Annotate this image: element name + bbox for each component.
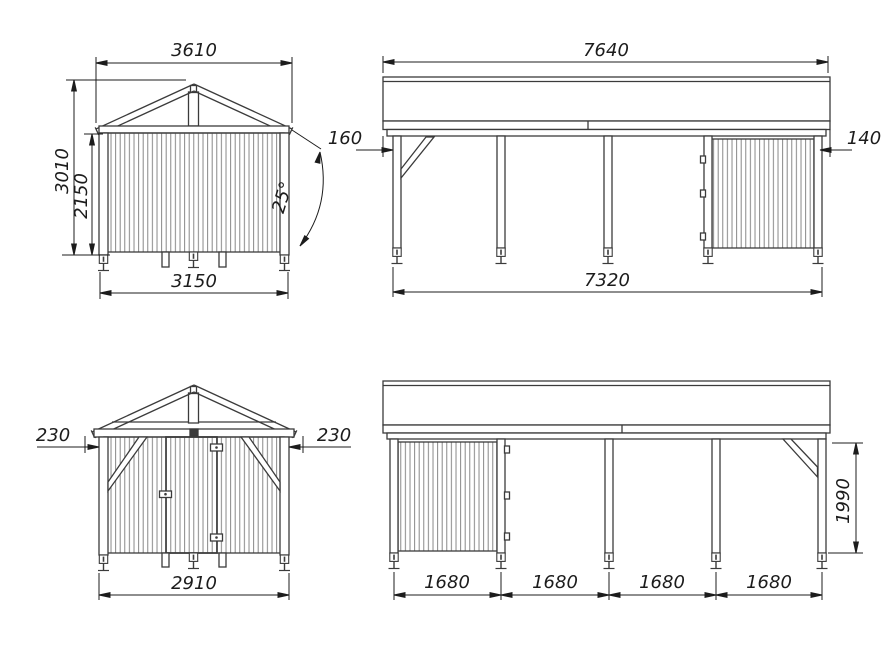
dim-right-overhang: 230 — [317, 425, 351, 446]
dim-roof-length: 7640 — [583, 40, 629, 61]
king-post — [189, 92, 199, 126]
dim-total-height: 3010 — [52, 148, 73, 194]
dim-bay-1: 1680 — [424, 572, 470, 593]
dim-left-overhang: 230 — [36, 425, 70, 446]
corner-post-left — [99, 437, 108, 555]
corner-post-right — [280, 437, 289, 555]
side-a-wall-section — [701, 136, 823, 248]
side-view-a: 7640 160 140 7320 — [328, 40, 881, 297]
dim-post-height: 1990 — [833, 478, 854, 524]
hinge-mark — [701, 233, 706, 240]
hinge-mark — [505, 446, 510, 453]
side-view-b: 1990 1680 1680 1680 1680 — [383, 381, 863, 600]
dim-roof-width-a: 3610 — [171, 40, 217, 61]
dim-left-offset: 160 — [328, 128, 362, 149]
front-b-foundation — [98, 553, 290, 571]
dim-bay-4: 1680 — [746, 572, 792, 593]
front-a-roof — [95, 84, 293, 135]
dim-right-offset: 140 — [847, 128, 881, 149]
hinge-mark — [701, 190, 706, 197]
dim-base-width-a: 3150 — [171, 271, 217, 292]
post-anchor — [188, 252, 199, 268]
dim-base-width-b: 2910 — [171, 573, 217, 594]
front-view-a: 3610 3010 2150 3150 25° — [52, 40, 323, 299]
hinge-mark — [505, 533, 510, 540]
post-anchor — [279, 555, 290, 571]
roof-beam — [383, 121, 830, 130]
post-anchor — [98, 555, 109, 571]
side-b-posts — [605, 439, 826, 553]
hinge-mark — [701, 156, 706, 163]
carport-technical-drawing: 3610 3010 2150 3150 25° — [0, 0, 894, 658]
post-anchor — [279, 255, 290, 271]
front-view-b: 230 230 2910 — [36, 385, 351, 600]
corner-post-left — [99, 133, 108, 255]
diagonal-brace — [401, 137, 434, 178]
ridge-bolt — [190, 429, 198, 436]
front-a-foundation — [98, 252, 290, 271]
front-a-siding — [104, 133, 284, 252]
dim-bay-3: 1680 — [639, 572, 685, 593]
hinge-mark — [505, 492, 510, 499]
roof-beam — [383, 425, 830, 433]
side-b-wall-section — [390, 439, 510, 553]
side-b-roof — [383, 381, 830, 439]
front-b-roof — [91, 385, 297, 438]
dim-base-length: 7320 — [584, 270, 630, 291]
side-a-roof — [383, 77, 830, 136]
post-anchor — [188, 553, 199, 569]
post-anchor — [98, 255, 109, 271]
side-a-feet — [392, 248, 824, 264]
drawing-canvas: 3610 3010 2150 3150 25° — [0, 0, 894, 658]
side-a-posts — [393, 136, 612, 248]
side-b-feet — [389, 553, 828, 569]
eave-beam — [99, 126, 289, 133]
dim-bay-2: 1680 — [532, 572, 578, 593]
dim-wall-height: 2150 — [71, 173, 92, 219]
king-post — [189, 393, 199, 423]
diagonal-brace — [783, 439, 818, 477]
